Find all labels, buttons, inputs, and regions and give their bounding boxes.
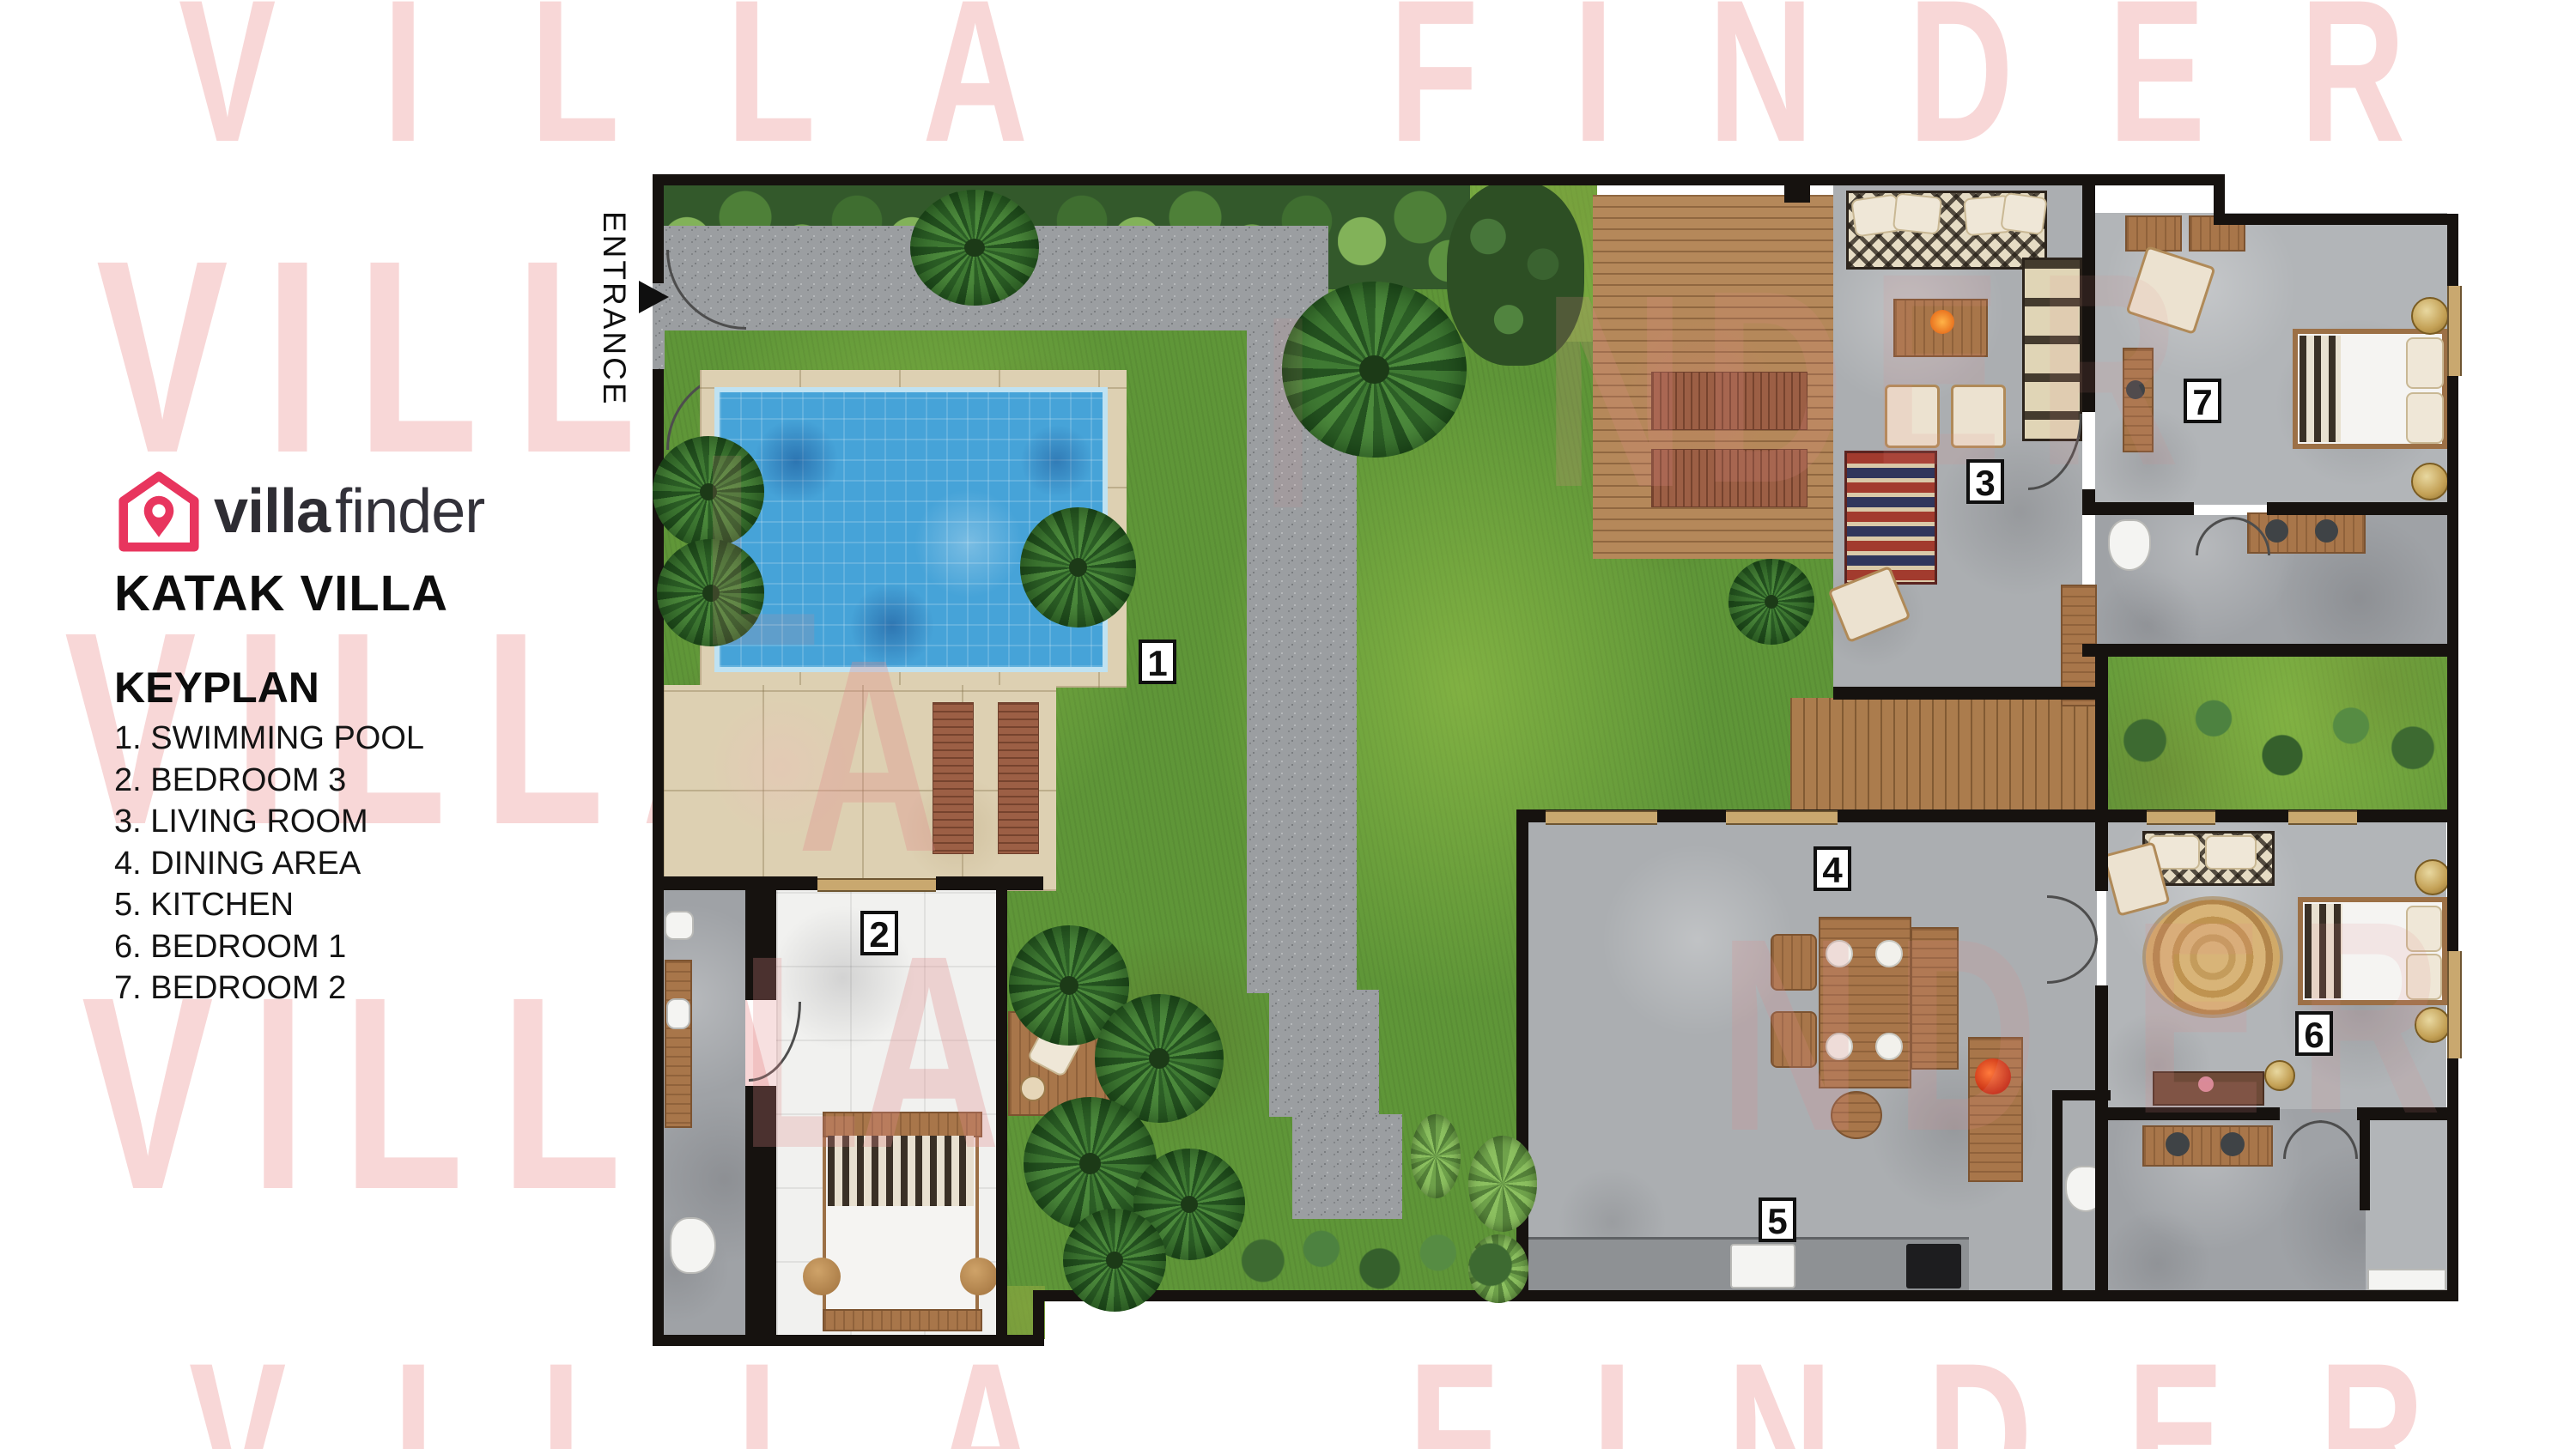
wall bbox=[1033, 1290, 1044, 1346]
nightstand-lamp bbox=[2415, 1007, 2451, 1043]
vanity-sink bbox=[2315, 519, 2338, 543]
sliding-door bbox=[1726, 810, 1838, 825]
table-flowers bbox=[1930, 310, 1954, 334]
fruit-bowl bbox=[1975, 1058, 2011, 1094]
sun-lounger bbox=[998, 702, 1039, 854]
wall bbox=[2052, 1090, 2063, 1290]
room-marker-3: 3 bbox=[1966, 459, 2004, 504]
pouf bbox=[960, 1258, 998, 1295]
vanity-sink bbox=[2265, 519, 2288, 543]
dining-chair bbox=[1771, 1011, 1817, 1068]
wall bbox=[2052, 1090, 2111, 1100]
coffee-tray bbox=[1020, 1076, 1046, 1101]
sliding-door bbox=[1546, 810, 1657, 825]
keyplan-item: 5. KITCHEN bbox=[114, 884, 424, 926]
bed-pillow bbox=[2406, 954, 2442, 1000]
sun-lounger bbox=[933, 702, 974, 854]
keyplan-item: 7. BEDROOM 2 bbox=[114, 967, 424, 1009]
armchair bbox=[1885, 385, 1940, 448]
brand-wordmark: villafinder bbox=[214, 476, 484, 547]
wall bbox=[653, 174, 2224, 185]
villafinder-house-icon bbox=[118, 470, 200, 553]
sofa-cushion bbox=[1893, 192, 1942, 234]
place-setting bbox=[1826, 940, 1853, 967]
bush-cluster bbox=[1447, 181, 1584, 366]
brand-logo: villafinder bbox=[118, 470, 484, 553]
kilim-rug bbox=[1844, 451, 1937, 585]
room-marker-5: 5 bbox=[1759, 1197, 1796, 1242]
floor-plan bbox=[653, 174, 2458, 1346]
keyplan-heading: KEYPLAN bbox=[114, 663, 319, 712]
watermark-word-finder: FINDER bbox=[1408, 1333, 2518, 1449]
entrance-arrow-icon bbox=[639, 281, 669, 313]
palm-tree bbox=[1020, 507, 1136, 627]
window bbox=[2147, 810, 2215, 825]
wall bbox=[2106, 1107, 2280, 1120]
armchair bbox=[1951, 385, 2006, 448]
bedside-console bbox=[2123, 348, 2154, 452]
keyplan-item: 1. SWIMMING POOL bbox=[114, 718, 424, 760]
deck-lounger bbox=[1651, 372, 1807, 430]
nightstand-lamp bbox=[2411, 297, 2449, 335]
window bbox=[2447, 286, 2462, 376]
floor-lamp bbox=[2264, 1060, 2295, 1091]
pouf bbox=[803, 1258, 841, 1295]
agave-plant bbox=[1411, 1114, 1461, 1198]
gravel-path bbox=[1292, 1114, 1402, 1219]
wall bbox=[1784, 185, 1810, 203]
wall bbox=[2447, 214, 2458, 1301]
wall bbox=[2214, 174, 2225, 214]
palm-tree bbox=[653, 436, 764, 548]
bed-runner bbox=[2305, 904, 2342, 998]
wardrobe bbox=[2125, 215, 2182, 252]
bed-foot-bench bbox=[823, 1309, 982, 1331]
stove bbox=[1906, 1244, 1961, 1288]
wall bbox=[1833, 687, 2095, 700]
bathroom-fixture bbox=[665, 911, 694, 940]
bed-pillow bbox=[2406, 906, 2442, 952]
wall bbox=[996, 890, 1007, 1335]
room-marker-6: 6 bbox=[2295, 1011, 2333, 1056]
bed-runner bbox=[2300, 336, 2341, 442]
keyplan-item: 3. LIVING ROOM bbox=[114, 801, 424, 843]
brand-word-finder: finder bbox=[335, 477, 484, 546]
dining-stool bbox=[1831, 1091, 1882, 1139]
place-setting bbox=[1875, 940, 1903, 967]
keyplan-item: 4. DINING AREA bbox=[114, 843, 424, 885]
plant-pot bbox=[2126, 380, 2145, 399]
garden-bushes bbox=[1228, 1217, 1520, 1296]
bed-pillow bbox=[2406, 392, 2444, 444]
wall bbox=[653, 1335, 1044, 1346]
keyplan-item: 2. BEDROOM 3 bbox=[114, 760, 424, 802]
side-garden-bushes bbox=[2104, 659, 2447, 807]
wall bbox=[663, 876, 817, 890]
shower-floor bbox=[2366, 1120, 2447, 1290]
room-marker-4: 4 bbox=[1814, 846, 1851, 891]
palm-tree bbox=[1282, 282, 1467, 458]
wall bbox=[2095, 985, 2108, 1290]
wall bbox=[2214, 214, 2458, 225]
sofa-cushion bbox=[2000, 192, 2048, 236]
watermark-row: VILLA FINDER bbox=[0, 1333, 2576, 1449]
dining-chair bbox=[1771, 934, 1817, 991]
wall bbox=[2360, 1120, 2370, 1210]
wall bbox=[2082, 183, 2095, 412]
wall bbox=[745, 890, 776, 1000]
palm-tree bbox=[657, 539, 764, 646]
place-setting bbox=[1826, 1033, 1853, 1060]
bench-cushion bbox=[2205, 835, 2257, 870]
kitchen-sink bbox=[1730, 1244, 1795, 1288]
nightstand-lamp bbox=[2411, 463, 2449, 500]
wall bbox=[2095, 822, 2108, 891]
keyplan-list: 1. SWIMMING POOL2. BEDROOM 33. LIVING RO… bbox=[114, 718, 424, 1009]
palm-tree bbox=[1728, 559, 1814, 645]
watermark-word-villa: VILLA bbox=[189, 1333, 1145, 1449]
bed-pillow bbox=[2406, 337, 2444, 389]
vanity-sink bbox=[2221, 1132, 2245, 1156]
villa-title: KATAK VILLA bbox=[114, 565, 448, 622]
vanity-sink bbox=[2166, 1132, 2190, 1156]
double-vanity bbox=[2142, 1125, 2273, 1167]
gravel-path bbox=[1269, 990, 1379, 1117]
wall bbox=[2267, 502, 2458, 515]
watermark-word-finder: FINDER bbox=[1389, 0, 2500, 173]
door-threshold bbox=[817, 878, 936, 892]
dining-bench bbox=[1911, 927, 1959, 1070]
room-marker-7: 7 bbox=[2184, 379, 2221, 423]
wall bbox=[936, 876, 1043, 890]
keyplan-item: 6. BEDROOM 1 bbox=[114, 926, 424, 968]
toilet bbox=[670, 1217, 716, 1274]
window bbox=[2447, 951, 2462, 1058]
wall bbox=[2357, 1107, 2458, 1120]
place-setting bbox=[1875, 1033, 1903, 1060]
window bbox=[2288, 810, 2357, 825]
round-jute-rug bbox=[2146, 900, 2280, 1015]
wall bbox=[2082, 502, 2194, 515]
bathroom-vanity bbox=[665, 960, 692, 1128]
palm-tree bbox=[1063, 1209, 1166, 1312]
bed-blanket bbox=[828, 1136, 974, 1206]
watermark-word-villa: VILLA bbox=[179, 0, 1135, 173]
watermark-row: VILLA FINDER bbox=[0, 0, 2576, 185]
brand-word-villa: villa bbox=[214, 477, 330, 546]
wood-walkway bbox=[1790, 698, 2110, 811]
wall bbox=[2095, 655, 2108, 811]
toilet bbox=[2108, 519, 2151, 571]
dresser-accessory bbox=[2198, 1076, 2214, 1092]
nightstand-lamp bbox=[2415, 859, 2451, 895]
room-marker-1: 1 bbox=[1139, 640, 1176, 684]
palm-tree bbox=[910, 190, 1039, 306]
shower-tray bbox=[2367, 1269, 2446, 1291]
room-marker-2: 2 bbox=[860, 911, 898, 955]
vanity-sink bbox=[666, 998, 690, 1029]
page: VILLA FINDER VILLA FINDER VILLA FINDER V… bbox=[0, 0, 2576, 1449]
deck-lounger bbox=[1651, 449, 1807, 507]
wall bbox=[2082, 644, 2458, 657]
entrance-label: ENTRANCE bbox=[599, 211, 632, 383]
bed-headboard bbox=[823, 1112, 982, 1137]
wall bbox=[653, 174, 664, 283]
wall bbox=[745, 1086, 776, 1335]
